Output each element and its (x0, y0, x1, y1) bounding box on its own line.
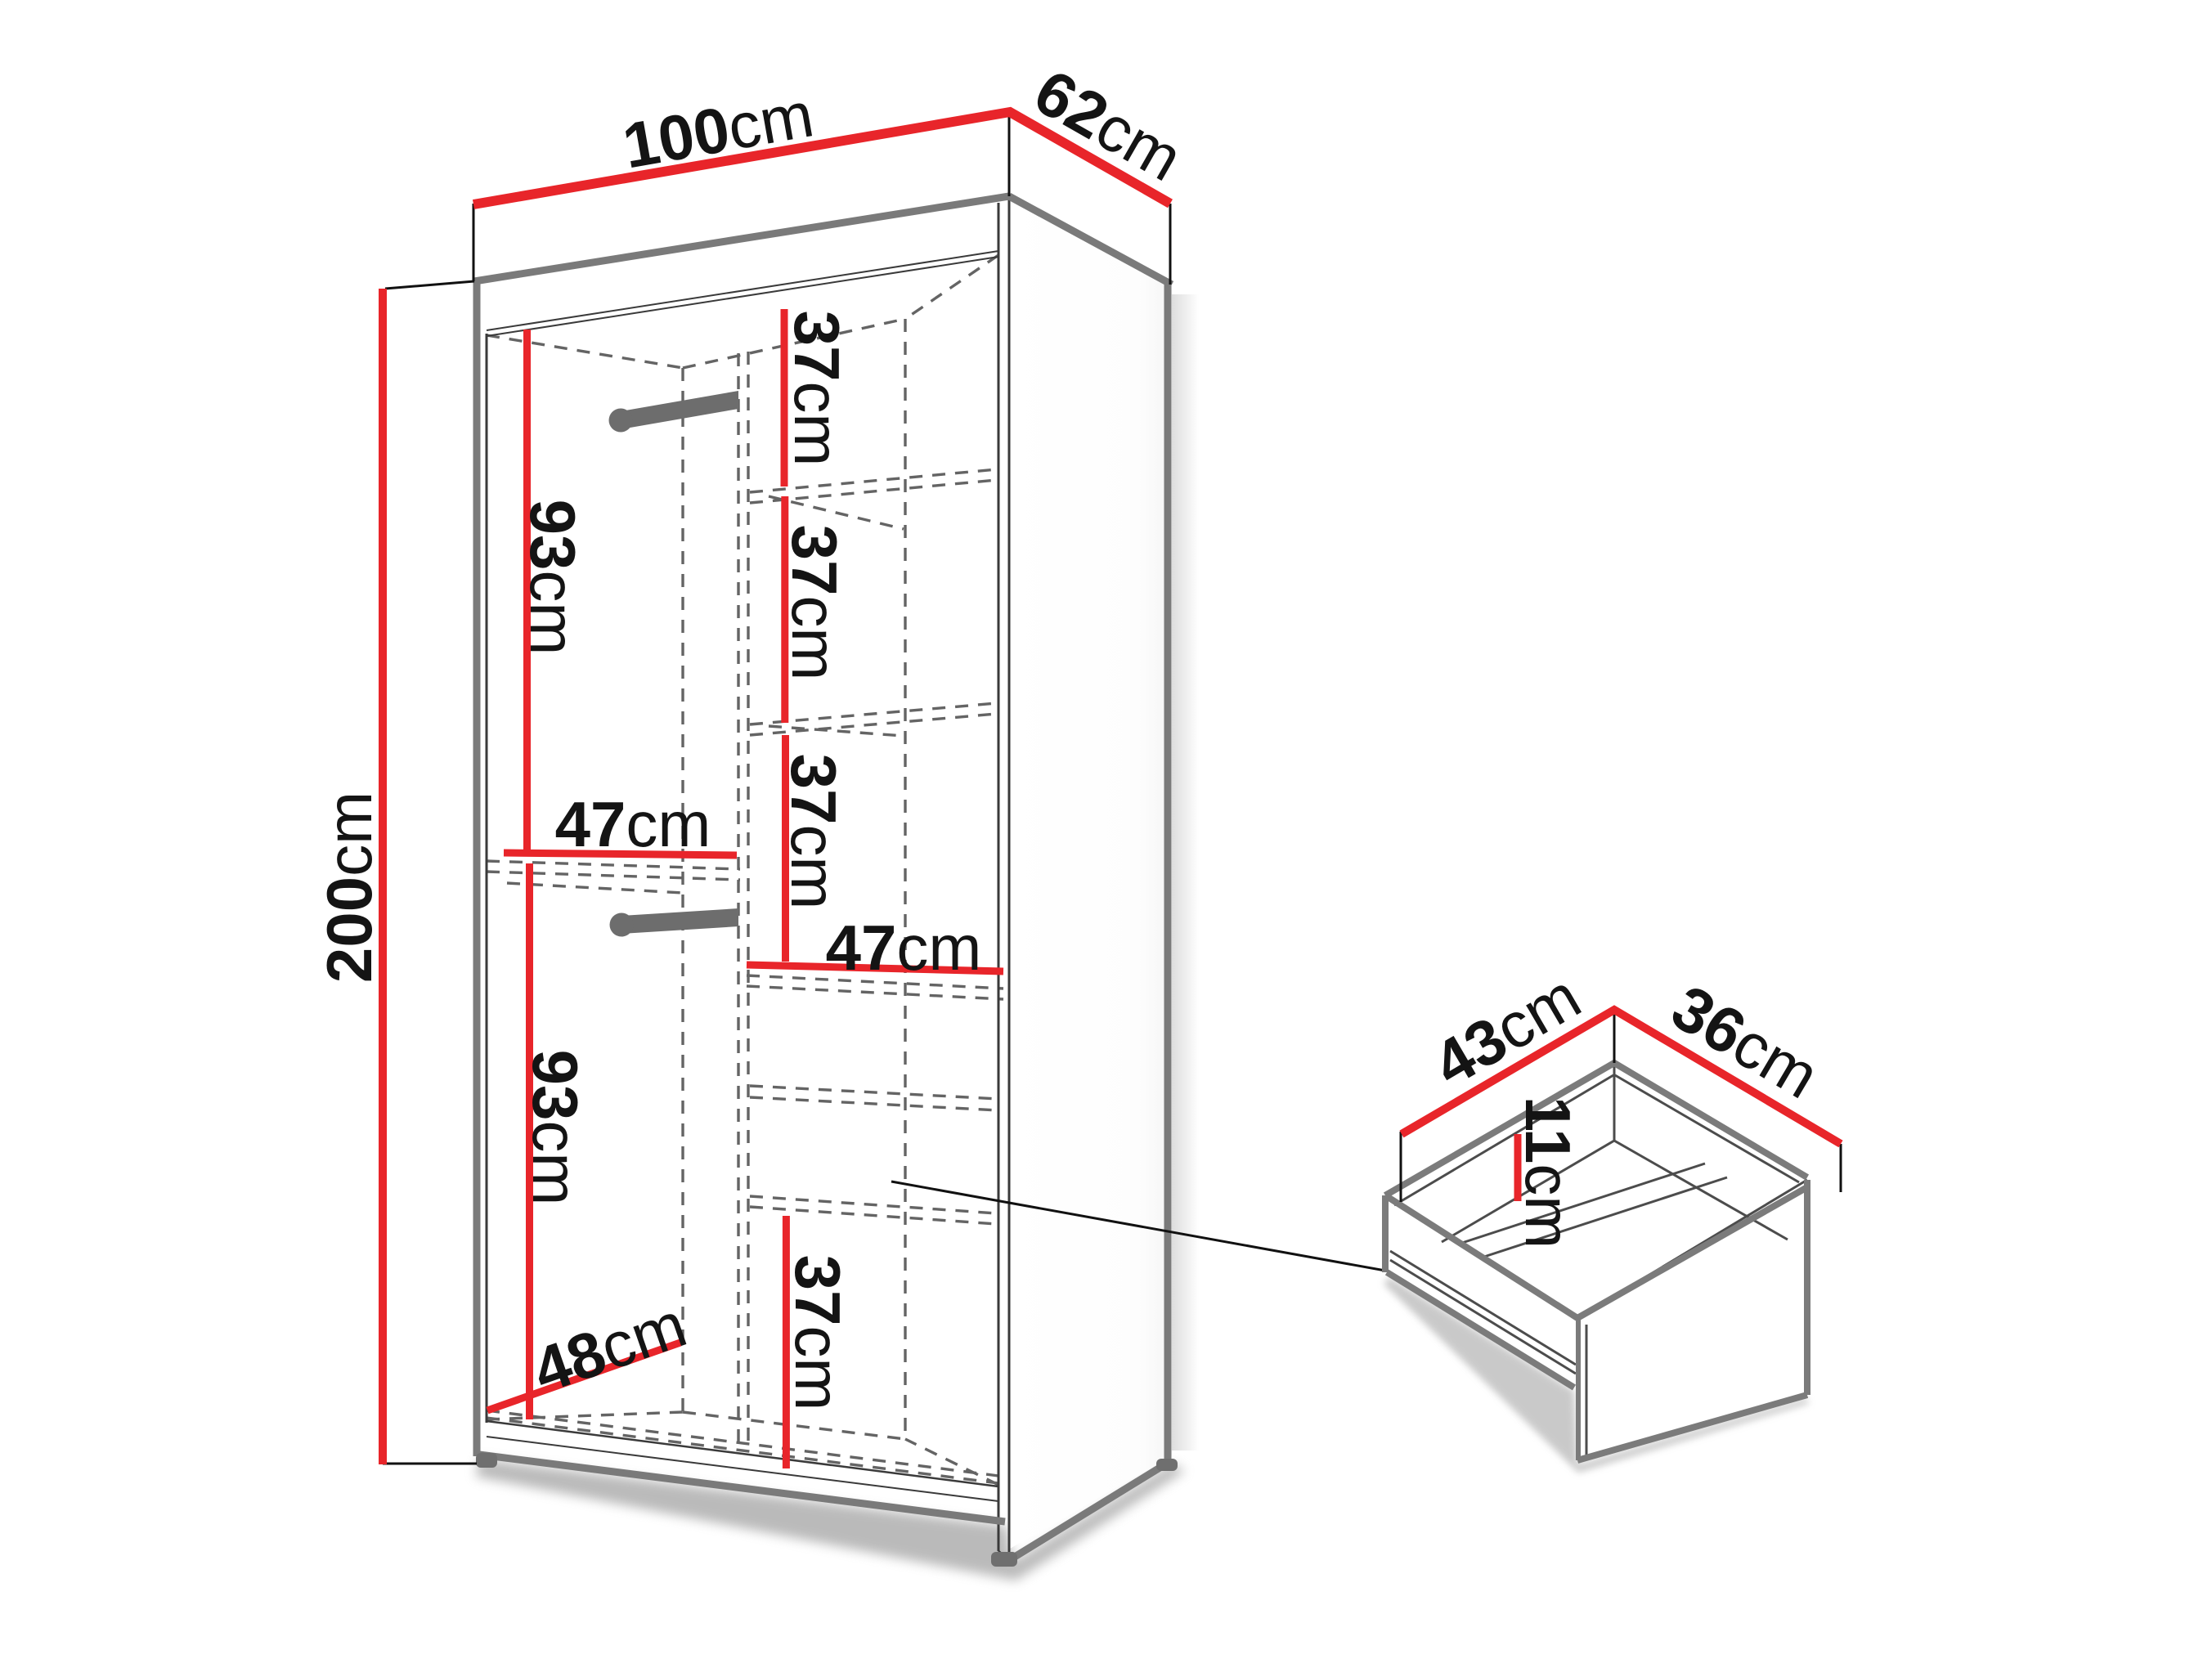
svg-text:11cm: 11cm (1512, 1096, 1584, 1249)
svg-text:200cm: 200cm (313, 791, 385, 983)
svg-text:93cm: 93cm (517, 500, 589, 656)
svg-text:37cm: 37cm (781, 311, 853, 467)
svg-text:47cm: 47cm (826, 912, 982, 984)
svg-text:47cm: 47cm (555, 788, 711, 860)
svg-text:37cm: 37cm (782, 1255, 854, 1411)
svg-text:93cm: 93cm (519, 1050, 591, 1206)
svg-text:37cm: 37cm (778, 754, 850, 910)
svg-text:37cm: 37cm (778, 525, 850, 681)
